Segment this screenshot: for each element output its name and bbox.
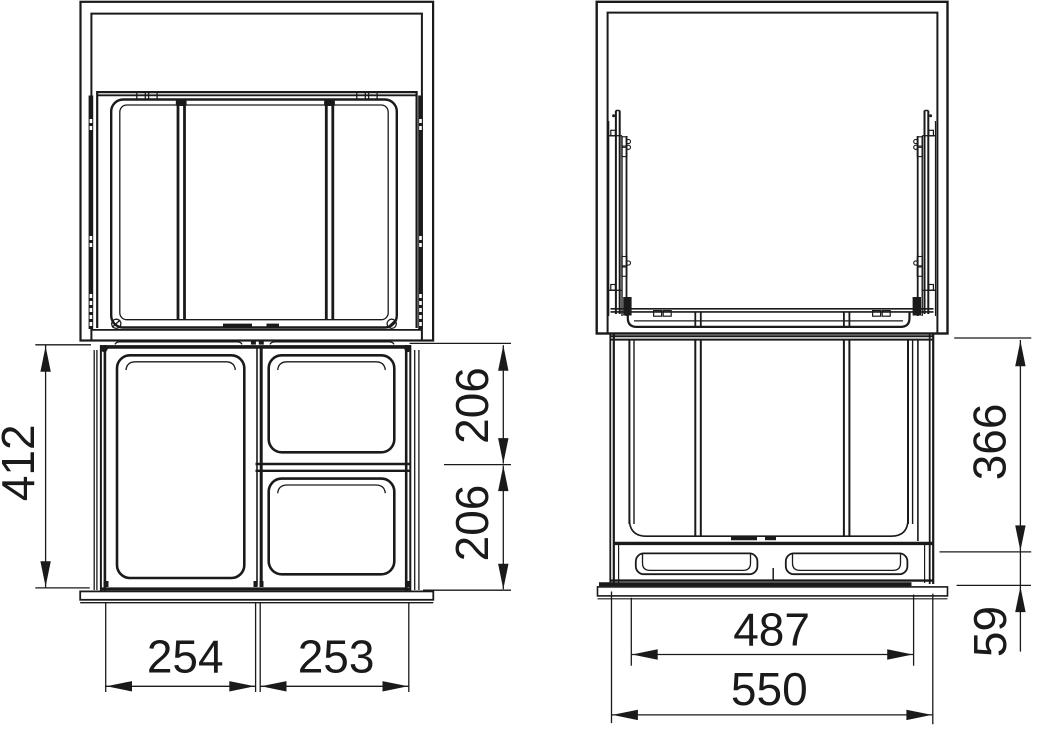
svg-text:550: 550 [731, 663, 808, 715]
svg-text:412: 412 [0, 424, 44, 501]
svg-text:254: 254 [147, 631, 224, 683]
svg-text:253: 253 [298, 631, 375, 683]
svg-text:366: 366 [964, 404, 1016, 481]
svg-text:206: 206 [446, 367, 498, 444]
svg-text:206: 206 [446, 485, 498, 562]
svg-text:487: 487 [733, 603, 810, 655]
svg-text:59: 59 [964, 606, 1016, 657]
